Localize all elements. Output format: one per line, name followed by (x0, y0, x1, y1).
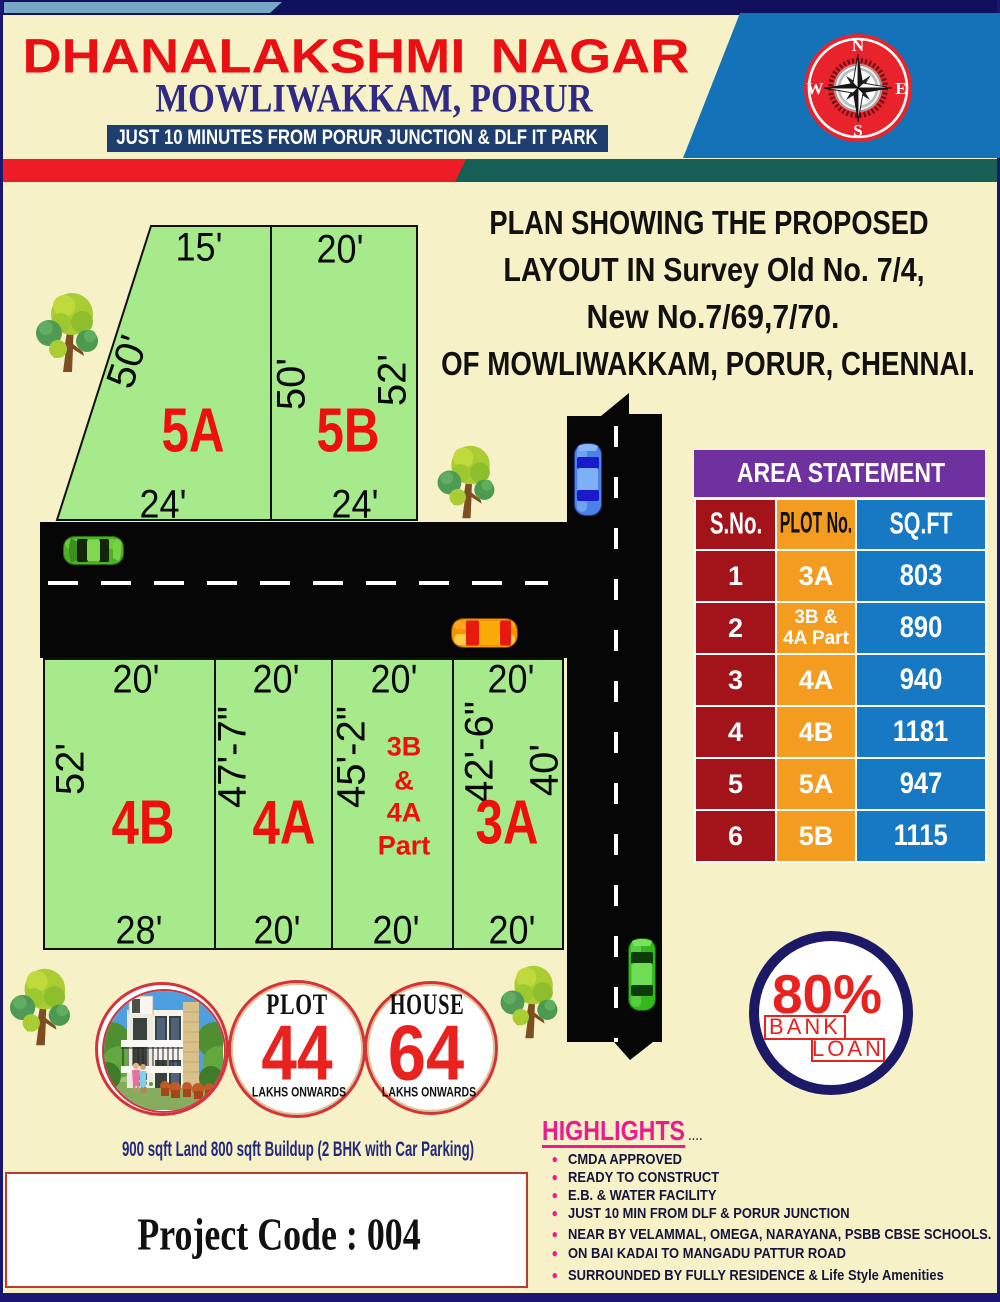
svg-text:N: N (852, 36, 865, 55)
svg-text:E: E (895, 79, 906, 98)
svg-text:W: W (807, 79, 824, 98)
svg-text:S: S (853, 121, 862, 140)
